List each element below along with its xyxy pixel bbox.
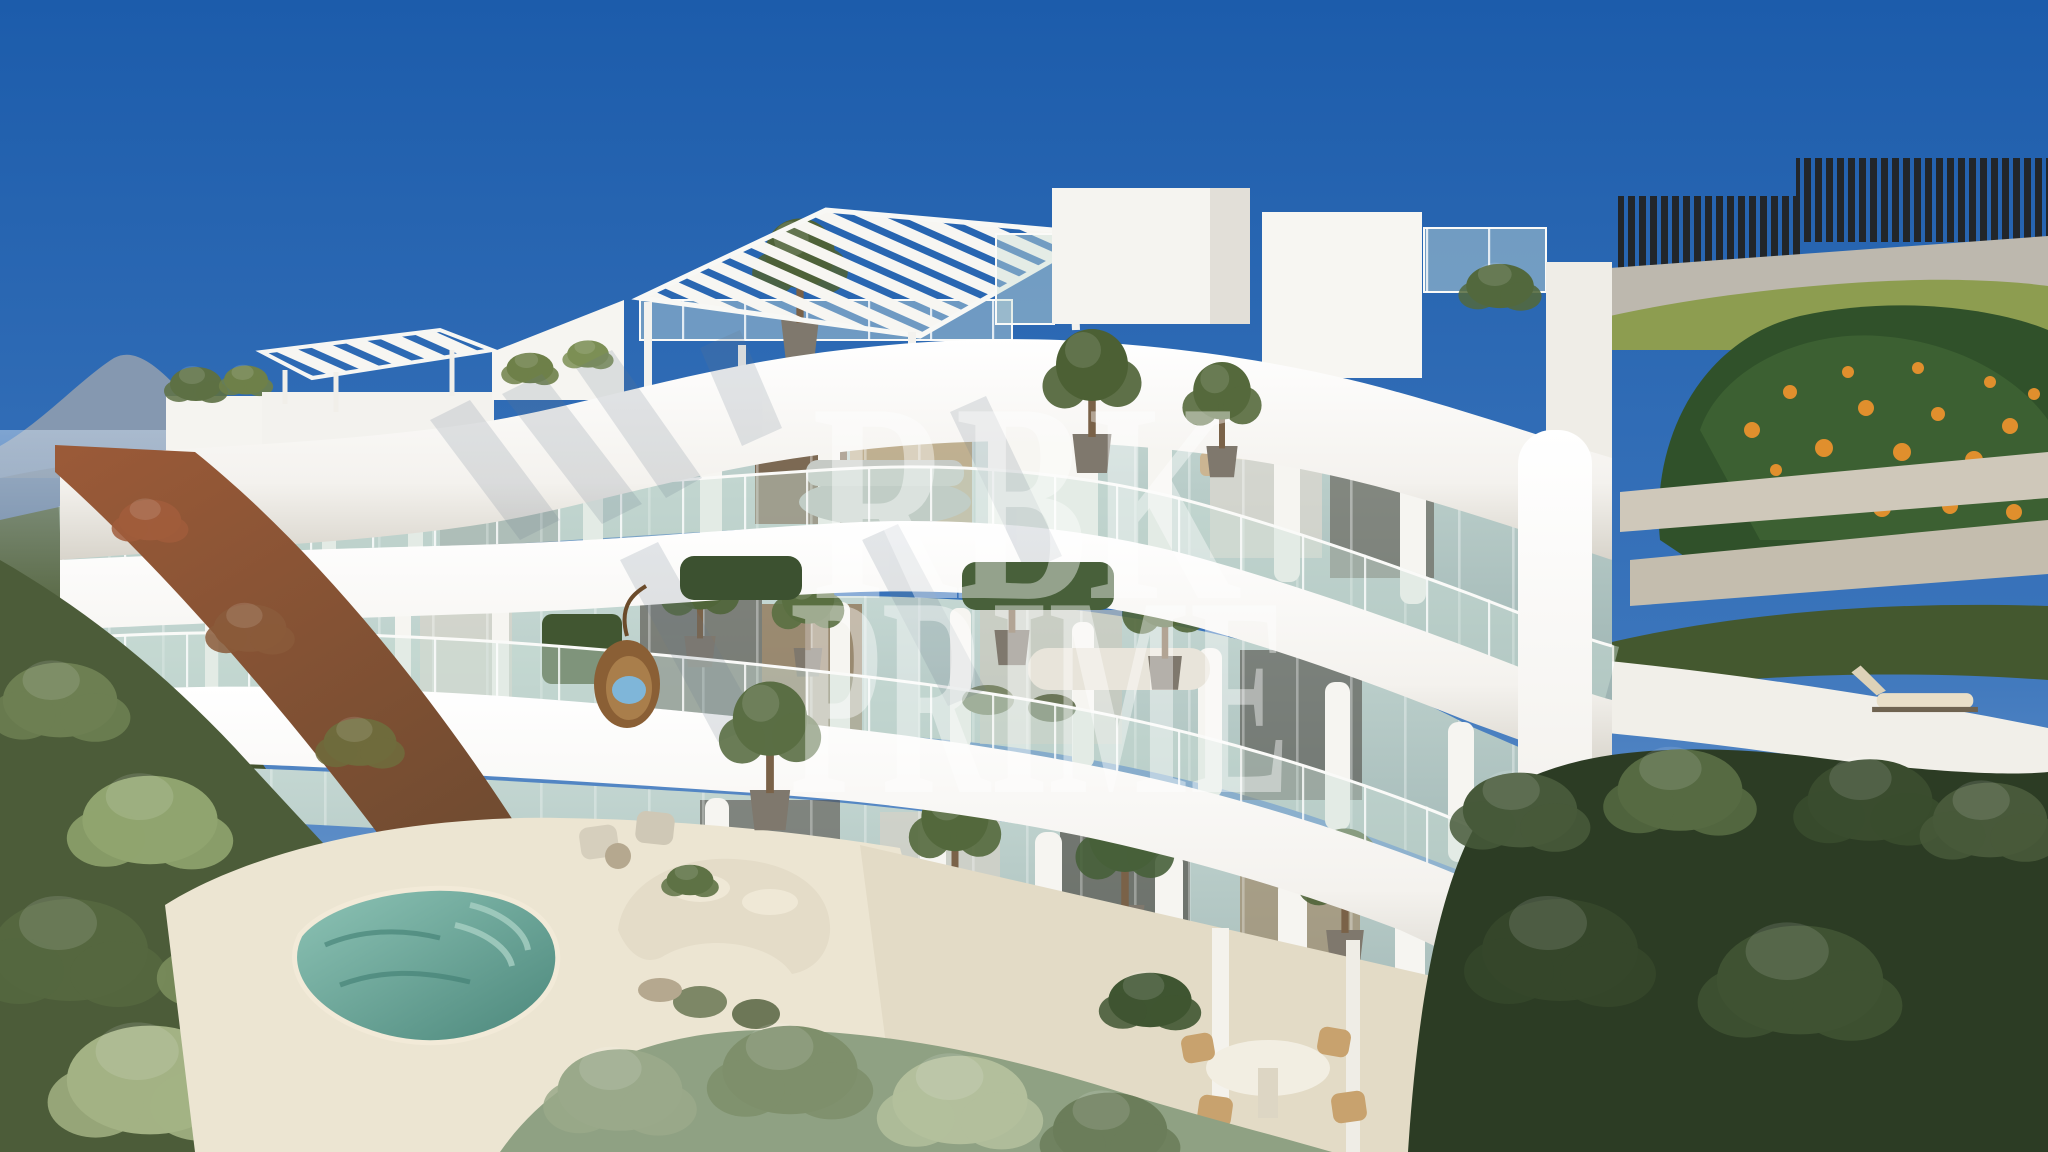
armchair (634, 810, 675, 846)
top-balcony-hedge (680, 556, 802, 600)
render-canvas: RBK PRIME (0, 0, 2048, 1152)
coffee-table (638, 978, 682, 1002)
table-pedestal (1258, 1068, 1278, 1118)
side-table (605, 843, 631, 869)
penthouse-box-right (1262, 212, 1422, 378)
property-render: RBK PRIME (0, 0, 2048, 1152)
sofa-cushion (742, 889, 798, 915)
egg-chair-cushion (612, 676, 646, 704)
chair (1330, 1090, 1368, 1124)
watermark: RBK PRIME (790, 344, 1290, 854)
penthouse-glass-rail (996, 234, 1054, 324)
slat-fence-right (1796, 158, 2048, 242)
penthouse-box-shade (1210, 188, 1250, 324)
watermark-line2: PRIME (790, 538, 1290, 854)
